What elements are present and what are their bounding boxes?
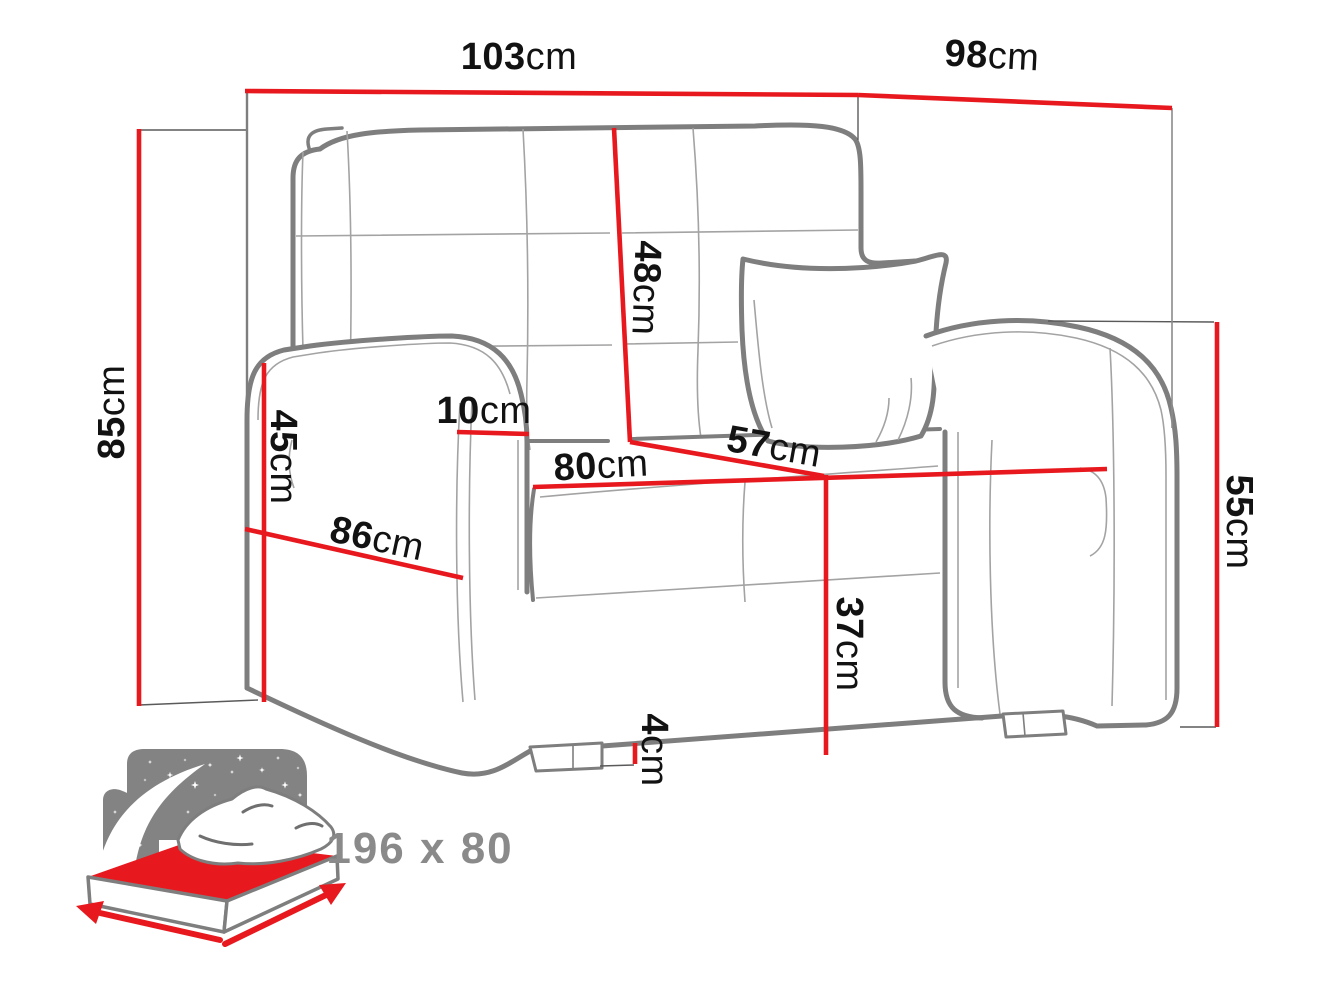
dimension-label-overall-height: 85cm [93, 365, 131, 460]
right-armrest [926, 321, 1177, 726]
dimension-label-seat-height: 37cm [830, 597, 868, 692]
pillow [741, 255, 946, 448]
sofa-line-art [0, 0, 1326, 994]
dimension-label-backrest-height: 48cm [625, 240, 666, 336]
dimension-label-overall-width: 103cm [461, 38, 578, 76]
dimension-value: 80 [552, 445, 597, 489]
dimension-value: 103 [461, 36, 526, 78]
dimension-line-overall-width [245, 91, 858, 95]
dimension-value: 4 [633, 713, 675, 735]
dimension-value: 45 [262, 410, 304, 453]
dimension-unit: cm [987, 35, 1041, 80]
dimension-value: 10 [437, 390, 480, 432]
dimension-value: 85 [91, 416, 133, 459]
dimension-unit: cm [1218, 518, 1260, 570]
dimension-value: 98 [943, 33, 988, 77]
dimension-label-armrest-outer-height: 55cm [1220, 475, 1258, 570]
dimension-label-armrest-height: 45cm [264, 410, 302, 505]
dimension-value: 55 [1218, 475, 1260, 518]
dimension-unit: cm [828, 640, 870, 692]
dimension-line-overall-depth [858, 95, 1172, 108]
dimension-value: 48 [625, 240, 668, 285]
sofa-bed-icon [76, 749, 346, 944]
dimension-unit: cm [262, 453, 304, 505]
dimension-unit: cm [480, 390, 532, 432]
dimension-unit: cm [766, 426, 824, 476]
dimension-line-armrest-width [457, 432, 529, 434]
dimension-value: 37 [828, 597, 870, 640]
dimension-diagram: 103cm 98cm 85cm 45cm 10cm 48cm 57cm 80cm… [0, 0, 1326, 994]
sleeping-area-size-label: 196 x 80 [326, 824, 513, 874]
dimension-unit: cm [623, 283, 667, 336]
dimension-unit: cm [633, 735, 675, 787]
dimension-unit: cm [596, 443, 650, 488]
dimension-label-armrest-width: 10cm [437, 392, 532, 430]
dimension-unit: cm [91, 365, 133, 417]
dimension-value: 57 [724, 418, 774, 467]
dimension-unit: cm [526, 36, 578, 78]
dimension-label-leg-height: 4cm [635, 713, 673, 786]
dimension-label-overall-depth: 98cm [944, 35, 1041, 78]
dimension-label-seat-width: 80cm [553, 445, 650, 488]
